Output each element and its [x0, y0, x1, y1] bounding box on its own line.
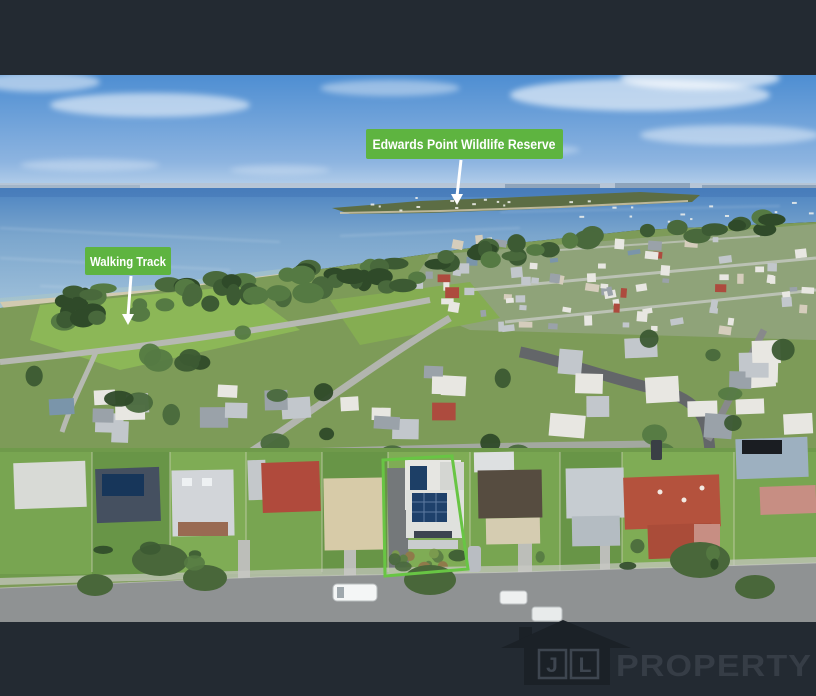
coastal-tree: [266, 285, 290, 301]
town-house: [426, 272, 433, 279]
subject-balcony: [408, 540, 458, 549]
cloud: [50, 93, 250, 117]
distant-building: [503, 204, 505, 206]
street-tree: [735, 575, 775, 599]
bush: [536, 551, 545, 563]
coastal-tree: [502, 251, 526, 261]
distant-building: [455, 207, 458, 209]
distant-building: [371, 204, 375, 206]
town-house: [660, 265, 670, 276]
suburb-house: [432, 403, 456, 421]
bush: [140, 542, 161, 555]
coastal-tree: [128, 306, 150, 322]
town-house: [718, 325, 731, 335]
bush: [710, 558, 718, 569]
distant-building: [379, 205, 381, 207]
coastal-tree: [526, 244, 545, 256]
town-house: [598, 264, 606, 269]
town-house: [727, 318, 734, 326]
cloud: [320, 80, 460, 96]
town-house: [587, 273, 596, 282]
town-house: [620, 288, 627, 298]
coastal-tree: [507, 234, 525, 252]
tree: [162, 404, 180, 425]
distant-building: [399, 209, 402, 211]
town-house: [480, 310, 486, 317]
logo-brand-text: PROPERTY: [616, 648, 812, 683]
bush: [619, 562, 636, 570]
town-house: [459, 263, 469, 273]
bush: [389, 553, 401, 565]
coastal-tree: [389, 279, 417, 292]
tree: [724, 415, 742, 431]
subject-windows: [414, 531, 452, 538]
house-roof: [13, 461, 87, 509]
real-estate-aerial-photo: Edwards Point Wildlife Reserve Walking T…: [0, 0, 816, 696]
coastal-tree: [226, 284, 240, 306]
suburb-house: [373, 416, 400, 430]
solar-panels: [410, 466, 427, 493]
tree: [495, 369, 511, 389]
town-house: [549, 273, 560, 283]
coastal-tree: [243, 287, 269, 305]
suburb-house: [200, 407, 228, 428]
distant-building: [612, 207, 616, 209]
bush: [706, 545, 720, 561]
house-roof: [566, 467, 625, 518]
suburb-house: [586, 396, 609, 417]
house-roof: [486, 518, 540, 545]
town-house: [709, 307, 718, 313]
tree: [718, 387, 742, 400]
town-house: [531, 277, 539, 283]
tree: [319, 428, 334, 440]
suburb-house: [783, 413, 813, 435]
suburb-house: [549, 413, 586, 439]
coastal-tree: [336, 269, 367, 284]
suburb-house: [735, 398, 764, 414]
solar-panels: [102, 474, 144, 496]
house-roof: [478, 469, 543, 518]
logo-letter-l: L: [579, 654, 592, 677]
white-car: [532, 607, 562, 621]
cloud: [640, 125, 816, 145]
town-house: [715, 284, 726, 292]
skylight: [700, 486, 705, 491]
suburb-house: [645, 376, 680, 404]
coastal-tree: [88, 311, 106, 325]
garden-shrub: [429, 549, 439, 559]
town-house: [781, 297, 792, 307]
coastal-tree: [156, 298, 175, 311]
town-house: [770, 276, 775, 284]
distant-building: [508, 201, 511, 203]
bush: [93, 546, 113, 554]
town-house: [713, 237, 719, 242]
suburb-house: [558, 349, 584, 376]
tree: [179, 349, 201, 366]
tree: [640, 330, 659, 348]
skylight: [658, 490, 663, 495]
town-house: [623, 322, 630, 327]
house-roof: [323, 477, 384, 550]
tree: [267, 389, 288, 402]
solar-panels: [412, 493, 447, 522]
bush: [184, 555, 205, 570]
suburb-house: [575, 373, 603, 394]
town-house: [519, 305, 526, 310]
distant-building: [709, 205, 713, 207]
cloud: [230, 165, 330, 175]
coastal-tree: [562, 232, 578, 248]
house-roof: [474, 452, 514, 473]
tree: [235, 325, 251, 339]
suburb-house: [432, 376, 451, 394]
town-house: [515, 295, 525, 302]
town-house: [801, 287, 814, 294]
suburb-house: [340, 396, 359, 411]
town-house: [464, 288, 474, 295]
brick-facade: [178, 522, 228, 536]
dormer: [202, 478, 212, 486]
distant-building: [630, 216, 633, 218]
coastal-tree: [758, 214, 785, 226]
distant-building: [775, 211, 778, 213]
white-car: [500, 591, 527, 604]
coastal-tree: [182, 288, 197, 306]
tree: [104, 391, 134, 407]
town-house: [636, 311, 647, 322]
minibus-windshield: [337, 587, 344, 598]
town-house: [511, 267, 523, 279]
distant-building: [588, 200, 591, 202]
coastal-tree: [640, 224, 655, 237]
town-house: [521, 277, 531, 285]
tree: [705, 349, 720, 361]
coastal-tree: [702, 226, 717, 236]
distant-building: [631, 206, 633, 208]
town-house: [441, 298, 453, 304]
street-tree: [77, 574, 113, 596]
tree: [26, 366, 43, 387]
coastal-tree: [201, 296, 219, 312]
distant-building: [416, 206, 420, 208]
town-house: [790, 287, 798, 292]
skylight: [682, 498, 687, 503]
tree: [772, 339, 795, 361]
dark-car: [651, 440, 662, 460]
suburb-house: [217, 384, 237, 397]
bush: [630, 539, 644, 553]
cloud: [20, 159, 160, 171]
reserve-label-text: Edwards Point Wildlife Reserve: [373, 137, 556, 152]
town-house: [519, 322, 533, 328]
distant-building: [579, 216, 584, 218]
suburb-house: [49, 398, 75, 415]
tree: [314, 383, 333, 401]
town-house: [648, 241, 662, 251]
suburb-house: [225, 402, 248, 418]
distant-building: [792, 202, 797, 204]
house-roof: [623, 474, 721, 529]
walking-track-text: Walking Track: [90, 255, 166, 269]
tree: [144, 349, 173, 372]
coastal-tree: [289, 266, 315, 285]
street-tree: [670, 542, 730, 578]
town-house: [719, 274, 728, 280]
solar-panels: [742, 440, 782, 454]
distant-building: [484, 199, 487, 201]
distant-building: [450, 200, 454, 202]
suburb-house: [745, 363, 768, 378]
distant-building: [725, 215, 729, 217]
coastal-tree: [667, 220, 688, 235]
silver-car: [468, 546, 481, 572]
distant-building: [809, 212, 814, 214]
town-house: [548, 323, 558, 329]
distant-building: [569, 201, 573, 203]
town-house: [662, 278, 669, 283]
distant-building: [680, 213, 685, 215]
town-house: [767, 263, 777, 271]
coastal-tree: [292, 283, 324, 304]
house-roof: [572, 516, 621, 547]
distant-building: [415, 197, 417, 199]
distant-building: [472, 203, 476, 205]
town-house: [506, 298, 514, 303]
town-house: [645, 251, 659, 260]
coastal-tree: [480, 251, 500, 268]
town-house: [799, 305, 807, 314]
town-house: [438, 274, 451, 282]
distant-building: [690, 218, 692, 220]
town-house: [614, 239, 624, 250]
dormer: [182, 478, 192, 486]
town-house: [755, 267, 764, 273]
town-house: [584, 315, 592, 325]
coastal-tree: [728, 220, 746, 232]
town-house: [530, 263, 538, 270]
suburb-house: [92, 408, 113, 422]
town-house: [795, 248, 807, 258]
town-house: [445, 287, 459, 298]
town-house: [613, 303, 619, 312]
town-house: [737, 274, 743, 284]
distant-building: [497, 201, 499, 203]
coastal-tree: [437, 250, 454, 264]
logo-letter-j: J: [546, 654, 558, 677]
house-roof: [261, 461, 321, 513]
house-roof: [760, 485, 816, 515]
top-letterbox-bar: [0, 0, 816, 75]
aerial-photo-canvas: Edwards Point Wildlife Reserve Walking T…: [0, 0, 816, 696]
